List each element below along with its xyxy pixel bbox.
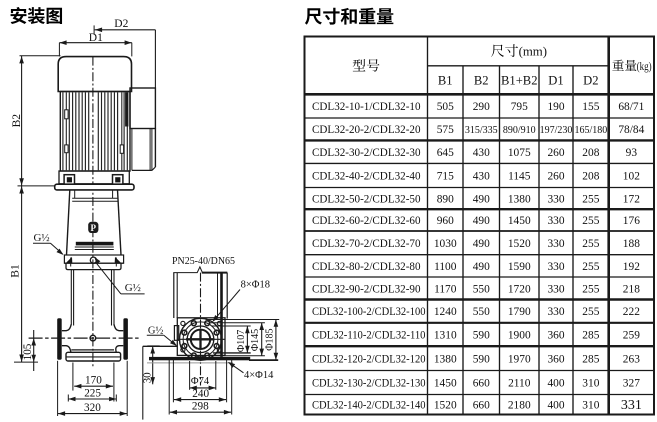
svg-text:320: 320 — [84, 402, 101, 414]
svg-text:CDL32-90-2/CDL32-90: CDL32-90-2/CDL32-90 — [312, 283, 421, 295]
svg-text:259: 259 — [623, 330, 640, 342]
svg-text:P: P — [90, 223, 96, 233]
svg-text:8×Φ18: 8×Φ18 — [241, 279, 270, 290]
svg-text:PN25-40/DN65: PN25-40/DN65 — [172, 255, 235, 267]
svg-text:660: 660 — [473, 400, 490, 412]
svg-text:1145: 1145 — [508, 170, 531, 182]
svg-text:165/180: 165/180 — [574, 125, 607, 136]
svg-text:B1+B2: B1+B2 — [501, 73, 538, 87]
svg-text:490: 490 — [473, 238, 490, 250]
svg-text:225: 225 — [84, 387, 101, 399]
svg-text:255: 255 — [582, 193, 599, 205]
svg-text:1170: 1170 — [434, 283, 457, 295]
svg-text:400: 400 — [547, 400, 564, 412]
svg-text:176: 176 — [623, 215, 640, 227]
svg-text:490: 490 — [473, 215, 490, 227]
svg-text:1720: 1720 — [508, 283, 531, 295]
svg-text:D1: D1 — [548, 73, 563, 87]
svg-text:255: 255 — [582, 261, 599, 273]
svg-text:505: 505 — [437, 101, 454, 113]
svg-text:1790: 1790 — [508, 306, 531, 318]
svg-text:645: 645 — [437, 147, 454, 159]
svg-text:263: 263 — [623, 353, 640, 365]
svg-text:2180: 2180 — [508, 400, 531, 412]
svg-text:260: 260 — [547, 147, 564, 159]
svg-text:1900: 1900 — [508, 330, 531, 342]
svg-text:B2: B2 — [11, 114, 23, 128]
svg-text:285: 285 — [582, 330, 599, 342]
svg-text:490: 490 — [473, 261, 490, 273]
svg-text:330: 330 — [547, 261, 564, 273]
svg-text:1520: 1520 — [508, 238, 531, 250]
svg-text:CDL32-80-2/CDL32-80: CDL32-80-2/CDL32-80 — [312, 261, 421, 273]
svg-text:890/910: 890/910 — [503, 125, 536, 136]
svg-text:CDL32-130-2/CDL32-130: CDL32-130-2/CDL32-130 — [312, 378, 426, 390]
svg-text:290: 290 — [473, 101, 490, 113]
svg-text:D2: D2 — [114, 18, 128, 30]
svg-text:CDL32-20-2/CDL32-20: CDL32-20-2/CDL32-20 — [312, 124, 421, 136]
svg-text:890: 890 — [437, 193, 454, 205]
svg-text:Φ107: Φ107 — [236, 330, 247, 352]
svg-text:1100: 1100 — [434, 261, 457, 273]
svg-text:795: 795 — [511, 101, 528, 113]
svg-text:B1: B1 — [438, 73, 453, 87]
svg-text:222: 222 — [623, 306, 640, 318]
svg-text:D1: D1 — [89, 32, 103, 44]
svg-text:1450: 1450 — [434, 378, 457, 390]
svg-text:1450: 1450 — [508, 215, 531, 227]
svg-text:CDL32-10-1/CDL32-10: CDL32-10-1/CDL32-10 — [312, 101, 421, 113]
svg-text:430: 430 — [473, 170, 490, 182]
svg-text:310: 310 — [582, 378, 599, 390]
svg-text:310: 310 — [582, 400, 599, 412]
svg-text:172: 172 — [623, 193, 640, 205]
svg-text:240: 240 — [192, 388, 209, 400]
svg-text:(mm): (mm) — [519, 45, 547, 59]
svg-text:30: 30 — [142, 372, 154, 384]
svg-text:550: 550 — [473, 283, 490, 295]
svg-text:550: 550 — [473, 306, 490, 318]
svg-text:331: 331 — [621, 398, 642, 413]
svg-text:CDL32-50-2/CDL32-50: CDL32-50-2/CDL32-50 — [312, 193, 421, 205]
svg-text:218: 218 — [623, 283, 640, 295]
svg-text:2110: 2110 — [508, 378, 531, 390]
svg-text:330: 330 — [547, 193, 564, 205]
svg-text:715: 715 — [437, 170, 454, 182]
svg-text:1520: 1520 — [434, 400, 457, 412]
svg-text:Φ145: Φ145 — [250, 329, 261, 351]
svg-text:360: 360 — [547, 353, 564, 365]
svg-text:CDL32-140-2/CDL32-140: CDL32-140-2/CDL32-140 — [312, 400, 426, 412]
svg-text:D2: D2 — [583, 73, 598, 87]
svg-text:490: 490 — [473, 193, 490, 205]
svg-text:G½: G½ — [33, 232, 49, 244]
svg-text:CDL32-110-2/CDL32-110: CDL32-110-2/CDL32-110 — [312, 330, 426, 342]
svg-text:197/230: 197/230 — [540, 125, 573, 136]
svg-text:B2: B2 — [474, 73, 489, 87]
svg-text:G½: G½ — [125, 282, 141, 294]
svg-text:78/84: 78/84 — [618, 124, 644, 136]
svg-text:1380: 1380 — [434, 353, 457, 365]
svg-text:1075: 1075 — [508, 147, 531, 159]
svg-text:102: 102 — [623, 170, 640, 182]
svg-text:298: 298 — [192, 401, 209, 413]
svg-text:CDL32-40-2/CDL32-40: CDL32-40-2/CDL32-40 — [312, 170, 421, 182]
svg-text:330: 330 — [547, 238, 564, 250]
svg-text:190: 190 — [547, 101, 564, 113]
svg-text:208: 208 — [582, 170, 599, 182]
svg-text:590: 590 — [473, 353, 490, 365]
svg-text:(kg): (kg) — [637, 61, 652, 73]
svg-text:CDL32-120-2/CDL32-120: CDL32-120-2/CDL32-120 — [312, 353, 426, 365]
svg-text:1970: 1970 — [508, 353, 531, 365]
svg-text:1380: 1380 — [508, 193, 531, 205]
svg-text:CDL32-30-2/CDL32-30: CDL32-30-2/CDL32-30 — [312, 147, 421, 159]
svg-text:CDL32-100-2/CDL32-100: CDL32-100-2/CDL32-100 — [312, 306, 426, 318]
svg-text:170: 170 — [85, 374, 102, 386]
svg-text:400: 400 — [547, 378, 564, 390]
svg-text:93: 93 — [626, 147, 638, 159]
svg-text:590: 590 — [473, 330, 490, 342]
svg-text:1590: 1590 — [508, 261, 531, 273]
svg-text:255: 255 — [582, 215, 599, 227]
svg-text:285: 285 — [582, 353, 599, 365]
svg-text:1030: 1030 — [434, 238, 457, 250]
svg-text:208: 208 — [582, 147, 599, 159]
svg-text:260: 260 — [547, 170, 564, 182]
svg-text:105: 105 — [22, 343, 34, 360]
svg-text:660: 660 — [473, 378, 490, 390]
svg-text:192: 192 — [623, 261, 640, 273]
svg-text:330: 330 — [547, 283, 564, 295]
svg-text:330: 330 — [547, 306, 564, 318]
svg-text:1240: 1240 — [434, 306, 457, 318]
svg-text:Φ185: Φ185 — [264, 328, 275, 350]
svg-text:68/71: 68/71 — [618, 101, 644, 113]
svg-text:CDL32-70-2/CDL32-70: CDL32-70-2/CDL32-70 — [312, 238, 421, 250]
svg-text:CDL32-60-2/CDL32-60: CDL32-60-2/CDL32-60 — [312, 215, 421, 227]
svg-text:155: 155 — [582, 101, 599, 113]
svg-text:255: 255 — [582, 283, 599, 295]
svg-text:1310: 1310 — [434, 330, 457, 342]
svg-text:315/335: 315/335 — [465, 125, 498, 136]
svg-text:330: 330 — [547, 215, 564, 227]
svg-text:255: 255 — [582, 306, 599, 318]
svg-text:327: 327 — [623, 378, 640, 390]
svg-text:4×Φ14: 4×Φ14 — [244, 370, 274, 381]
svg-text:188: 188 — [623, 238, 640, 250]
svg-text:255: 255 — [582, 238, 599, 250]
svg-text:430: 430 — [473, 147, 490, 159]
svg-text:575: 575 — [437, 124, 454, 136]
svg-text:B1: B1 — [10, 264, 22, 278]
svg-text:960: 960 — [437, 215, 454, 227]
svg-text:360: 360 — [547, 330, 564, 342]
svg-text:Φ74: Φ74 — [191, 376, 210, 387]
